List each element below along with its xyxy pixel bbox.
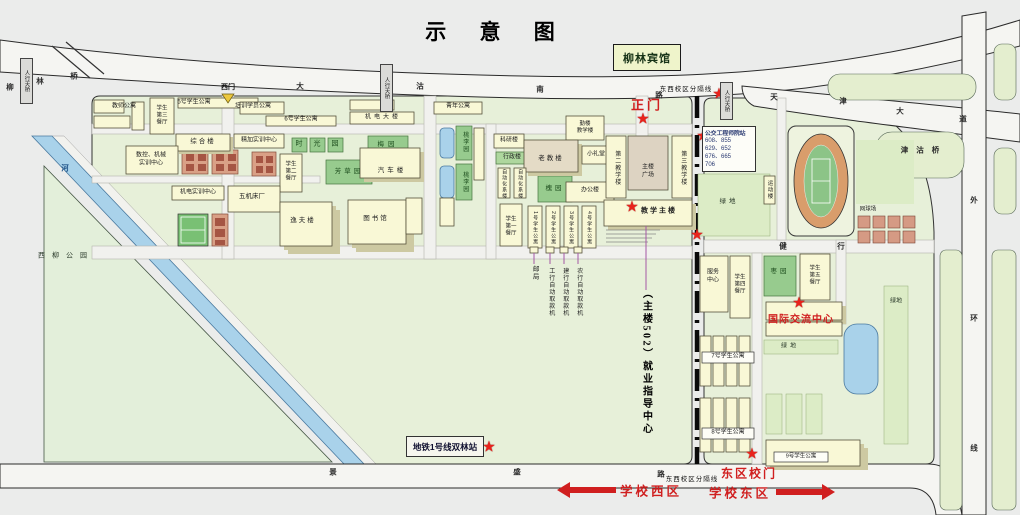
star-main-teaching-building: ★ [625, 200, 638, 215]
label-zao-garden: 枣园 [771, 268, 790, 276]
label-teaching-building-2: 第二教学楼 [612, 151, 620, 186]
road-jianxing-1: 健 [779, 241, 787, 250]
label-service-center: 服务 中心 [707, 270, 719, 285]
map-title: 示 意 图 [412, 16, 582, 46]
label-main-building-square: 主楼 广场 [642, 165, 654, 180]
label-dining-hall-4: 学生 第四 餐厅 [734, 275, 745, 296]
label-layer: 教师公寓学生 第三 餐厅5号学生公寓培训学员公寓6号学生公寓机电大楼青年公寓综合… [0, 0, 1020, 515]
road-outer-ring-1: 外 [970, 195, 978, 204]
label-small-auditorium: 小礼堂 [587, 151, 605, 159]
label-admin-building: 行政楼 [503, 154, 521, 162]
label-tennis-court: 网球场 [860, 207, 877, 214]
label-apartment-2: 2号学生公寓 [550, 211, 556, 245]
label-green-space-1: 绿地 [720, 198, 739, 206]
label-garden-yuan: 园 [332, 141, 339, 150]
label-green-space-3: 绿地 [890, 298, 902, 306]
label-dining-hall-5: 学生 第五 餐厅 [809, 266, 820, 287]
star-divider-crossing: ★ [690, 228, 703, 243]
label-apartment-3: 3号学生公寓 [568, 211, 574, 245]
label-apartment-4: 4号学生公寓 [586, 211, 592, 245]
label-electromech-training-center: 机电实训中心 [180, 189, 216, 197]
star-east-gate: ★ [745, 447, 758, 462]
road-tianjin-ave-2: 津 [839, 96, 847, 105]
label-fangcao-garden: 芳草园 [335, 168, 364, 176]
label-library: 图书馆 [363, 215, 389, 223]
bus-line-3: 676、665 [705, 153, 753, 161]
star-metro-station: ★ [482, 440, 495, 455]
label-green-space-2: 绿地 [781, 343, 799, 351]
label-dining-hall-3: 学生 第三 餐厅 [156, 106, 167, 127]
road-tianjin-ave-1: 天 [770, 92, 778, 101]
east-zone-arrow-icon [776, 489, 830, 495]
bus-stop-name: 公交工程师院站 [705, 128, 753, 137]
label-sports-building: 运动楼 [766, 180, 773, 200]
road-jianxing-2: 行 [837, 241, 845, 250]
bus-line-4: 706 [705, 161, 753, 169]
label-ccb-atm: 建行自动取款机 [560, 268, 568, 317]
label-icbc-atm: 工行自动取款机 [546, 268, 554, 317]
intl-exchange-center-label: 国际交流中心 [768, 311, 834, 326]
label-mei-garden: 梅园 [378, 141, 399, 149]
road-dagu-south-3: 南 [536, 84, 544, 93]
label-youth-apartment: 青年公寓 [446, 103, 470, 111]
label-precision-training-center: 精加实训中心 [241, 137, 277, 145]
road-jingu-bridge: 津沽桥 [901, 145, 948, 154]
label-teaching-building-3: 第三教学楼 [678, 151, 686, 186]
label-huai-garden: 槐园 [546, 185, 565, 193]
label-old-teaching-building: 老教楼 [538, 155, 564, 163]
bus-line-1: 608、855 [705, 137, 753, 145]
road-jingsheng-1: 景 [329, 467, 337, 476]
label-auto-building: 汽车楼 [378, 167, 407, 175]
label-apartment-8: 8号学生公寓 [711, 429, 744, 437]
east-gate-label: 东区校门 [721, 465, 777, 482]
label-main-teaching-building: 教学主楼 [641, 208, 677, 217]
label-apartment-5: 5号学生公寓 [177, 99, 210, 107]
road-jingsheng-3: 路 [657, 469, 665, 478]
label-apartment-9: 9号学生公寓 [786, 454, 817, 461]
west-zone-arrow-icon [562, 487, 616, 493]
road-tianjin-ave-3: 大 [896, 106, 904, 115]
label-taoli-garden-south: 桃李园 [460, 172, 468, 193]
label-cnc-training-center: 数控、机械 实训中心 [136, 153, 166, 168]
label-garden-shi: 时 [296, 141, 303, 150]
west-zone-label: 学校西区 [620, 481, 682, 500]
label-abc-atm: 农行自动取款机 [574, 268, 582, 317]
label-apartment-6: 6号学生公寓 [284, 116, 317, 124]
label-yifu-building: 逸夫楼 [290, 217, 316, 225]
road-jingsheng-2: 盛 [513, 467, 521, 476]
road-dagu-south-2: 沽 [416, 81, 424, 90]
bus-stop-sign: 公交工程师院站 608、855 629、652 676、665 706 [702, 126, 756, 172]
star-main-gate: ★ [636, 112, 649, 127]
label-xiliu-park: 西柳公园 [38, 253, 94, 262]
pedestrian-bridge-west: 人行天桥 [20, 58, 33, 104]
label-teacher-apartment: 教师公寓 [112, 103, 136, 111]
metro-station-label: 地铁1号线双林站 [413, 441, 477, 453]
star-intl-exchange-center: ★ [792, 296, 805, 311]
label-office-building: 办公楼 [581, 187, 599, 195]
label-dining-hall-2: 学生 第二 餐厅 [285, 162, 296, 183]
liulin-hotel-label: 柳林宾馆 [623, 50, 671, 66]
label-jidian-building: 机电大楼 [365, 114, 401, 122]
label-zonghe-building: 综合楼 [190, 138, 216, 146]
road-dagu-south-1: 大 [296, 81, 304, 90]
road-liulin-bridge-3: 桥 [70, 71, 78, 80]
road-outer-ring-2: 环 [970, 313, 978, 322]
employment-center-note: （主楼502）就业指导中心 [639, 288, 654, 436]
label-garden-guang: 光 [314, 141, 321, 150]
road-tianjin-ave-4: 道 [959, 114, 967, 123]
label-apartment-1: 1号学生公寓 [532, 211, 538, 245]
road-liulin-bridge-2: 林 [36, 76, 44, 85]
label-apartment-7: 7号学生公寓 [711, 353, 744, 361]
label-automation-building-1: 自动化系楼 [501, 169, 507, 199]
east-zone-label: 学校东区 [709, 483, 771, 502]
label-machine-tool-factory: 五机床厂 [239, 193, 265, 201]
divider-label-top: 东西校区分隔线 [660, 83, 713, 93]
metro-station-box: 地铁1号线双林站 [406, 436, 484, 457]
main-gate-label: 正门 [631, 95, 663, 114]
label-trainee-apartment: 培训学员公寓 [235, 103, 271, 111]
label-qinlou-teaching-building: 勤楼 教学楼 [577, 121, 594, 135]
road-outer-ring-3: 线 [970, 443, 978, 452]
bus-line-2: 629、652 [705, 145, 753, 153]
label-automation-building-2: 自动化系楼 [517, 169, 523, 199]
river-name: 河 [61, 163, 69, 172]
campus-map: 教师公寓学生 第三 餐厅5号学生公寓培训学员公寓6号学生公寓机电大楼青年公寓综合… [0, 0, 1020, 515]
label-research-building: 科研楼 [500, 137, 518, 145]
label-dining-hall-1: 学生 第一 餐厅 [505, 217, 516, 238]
road-liulin-bridge-1: 柳 [6, 82, 14, 91]
west-gate-label: 西门 [221, 82, 235, 92]
label-taoli-garden-north: 桃李园 [460, 132, 468, 153]
liulin-hotel-box: 柳林宾馆 [613, 44, 681, 71]
pedestrian-bridge-center: 人行天桥 [380, 64, 393, 112]
label-post-office: 邮局 [530, 266, 538, 281]
pedestrian-bridge-east: 人行天桥 [720, 82, 733, 120]
